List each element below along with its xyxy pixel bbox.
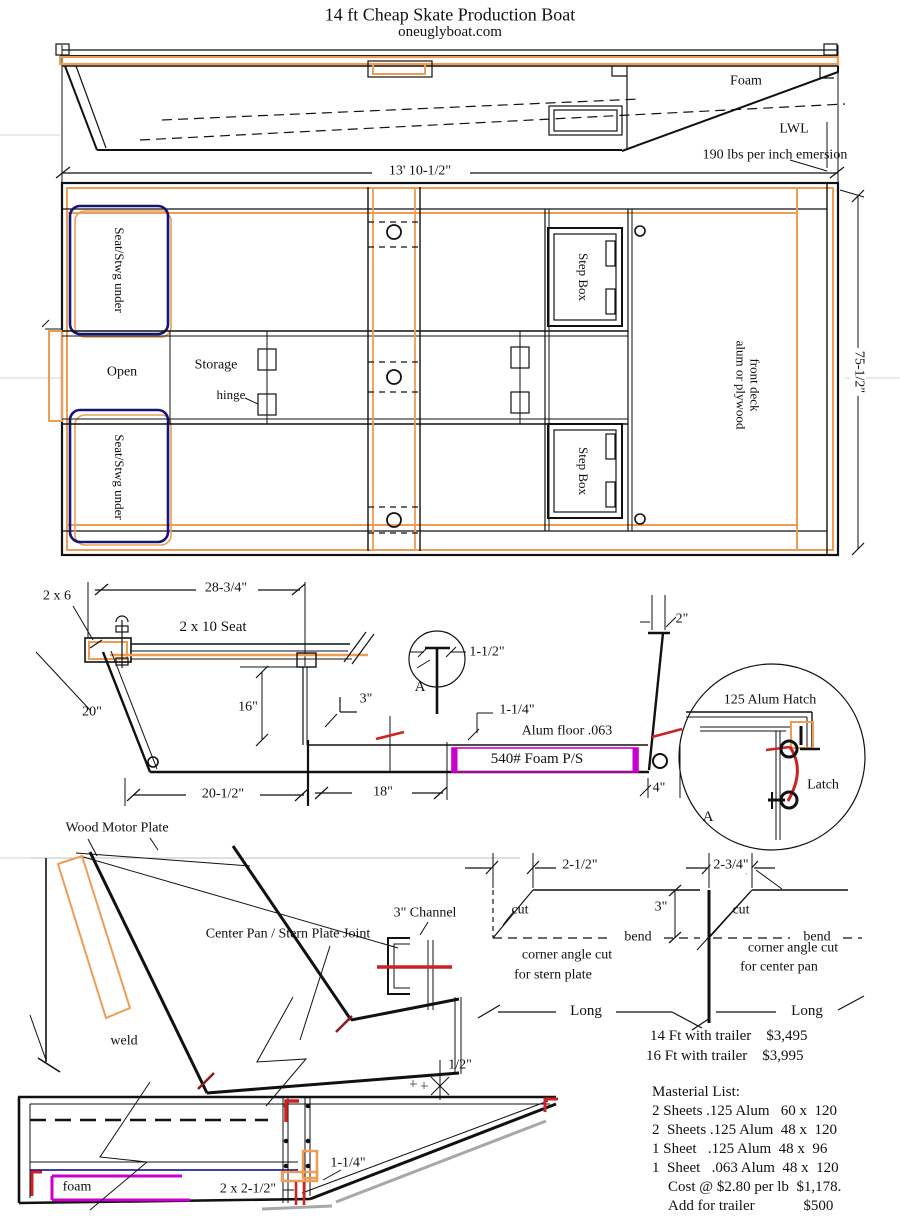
section-a-marker: A (415, 680, 426, 696)
seat-width-dim-label: 28-3/4" (202, 582, 250, 597)
four-inch-dim-label: 4" (653, 782, 666, 797)
page-title: 14 ft Cheap Skate Production Boat (325, 6, 575, 25)
cut-right-long-label: Long (788, 1004, 826, 1020)
one-half-dim-label: 1-1/2" (469, 646, 504, 661)
cut-left-long-label: Long (567, 1004, 605, 1020)
channel-label: 3" Channel (394, 907, 457, 922)
step-box-top-label: Step Box (576, 253, 590, 301)
materials-row-2: 2 Sheets .125 Alum 48 x 120 (652, 1122, 837, 1139)
bottom-foam-label: foam (63, 1181, 92, 1196)
cut-right-dim-label: 2-3/4" (710, 859, 751, 874)
cut-left-bend-label: bend (621, 931, 654, 946)
cut-left-caption1: corner angle cut (522, 949, 612, 964)
cut-left-dim-label: 2-1/2" (559, 859, 600, 874)
lumber-2x6-label: 2 x 6 (43, 590, 71, 605)
step-box-bottom-label: Step Box (576, 447, 590, 495)
alum-floor-label: Alum floor .063 (522, 725, 613, 740)
materials-trailer: Add for trailer $500 (668, 1198, 833, 1215)
side-depth-dim-label: 20" (82, 706, 102, 721)
center-pan-joint-label: Center Pan / Stern Plate Joint (206, 928, 370, 943)
lwl-label: LWL (779, 123, 808, 138)
materials-row-1: 2 Sheets .125 Alum 60 x 120 (652, 1103, 837, 1120)
price-16ft: 16 Ft with trailer $3,995 (646, 1048, 804, 1065)
wood-motor-plate-label: Wood Motor Plate (65, 822, 168, 837)
cut-left-caption2: for stern plate (514, 969, 592, 984)
seat-2x10-label: 2 x 10 Seat (179, 620, 246, 636)
wall-height-dim-label: 16" (238, 701, 258, 716)
cleat-label: 2 x 2-1/2" (220, 1183, 276, 1198)
materials-row-4: 1 Sheet .063 Alum 48 x 120 (652, 1160, 839, 1177)
boat-plan-sheet: 14 ft Cheap Skate Production Boat oneugl… (0, 0, 900, 1230)
beam-dimension-label: 75-1/2" (851, 348, 866, 396)
two-inch-dim-label: 2" (676, 613, 689, 628)
length-dimension-label: 13' 10-1/2" (386, 165, 454, 180)
seat-stwg-forward-label: Seat/Stwg under (112, 227, 126, 313)
open-label: Open (107, 366, 137, 381)
front-deck-label: front deck alum or plywood (734, 341, 761, 430)
half-inch-dim-label: 1/2" (448, 1059, 472, 1074)
stern-joint-drawing (30, 838, 520, 1106)
latch-label: Latch (807, 779, 839, 794)
bottom-view-drawing (18, 398, 558, 1210)
price-14ft: 14 Ft with trailer $3,495 (650, 1028, 808, 1045)
cut-right-caption1: corner angle cut (748, 942, 838, 957)
materials-heading: Masterial List: (652, 1084, 740, 1101)
storage-label: Storage (195, 359, 238, 374)
cut-left-three-label: 3" (655, 901, 668, 916)
three-inch-dim-label: 3" (360, 693, 373, 708)
cut-left-cut-label: cut (511, 904, 528, 919)
seat-stwg-aft-label: Seat/Stwg under (112, 434, 126, 520)
guide-lines (0, 135, 900, 858)
materials-cost: Cost @ $2.80 per lb $1,178. (668, 1179, 841, 1196)
emersion-label: 190 lbs per inch emersion (703, 149, 848, 164)
bottom-length-dim-label: 20-1/2" (199, 788, 247, 803)
site-url: oneuglyboat.com (398, 25, 502, 41)
materials-row-3: 1 Sheet .125 Alum 48 x 96 (652, 1141, 827, 1158)
floor-length-dim-label: 18" (370, 786, 396, 801)
front-deck-line1: front deck (748, 341, 762, 430)
front-deck-line2: alum or plywood (734, 341, 748, 430)
foam-label: Foam (730, 75, 762, 90)
hinge-label: hinge (217, 388, 246, 402)
foam-block-label: 540# Foam P/S (491, 752, 584, 768)
lip-dim-label: 1-1/4" (330, 1157, 365, 1172)
hatch-detail-title: 125 Alum Hatch (724, 694, 817, 709)
weld-label: weld (110, 1035, 137, 1050)
detail-a-marker: A (703, 810, 714, 826)
cut-right-caption2: for center pan (740, 961, 818, 976)
one-quarter-dim-label: 1-1/4" (499, 704, 534, 719)
cut-right-cut-label: cut (732, 904, 749, 919)
